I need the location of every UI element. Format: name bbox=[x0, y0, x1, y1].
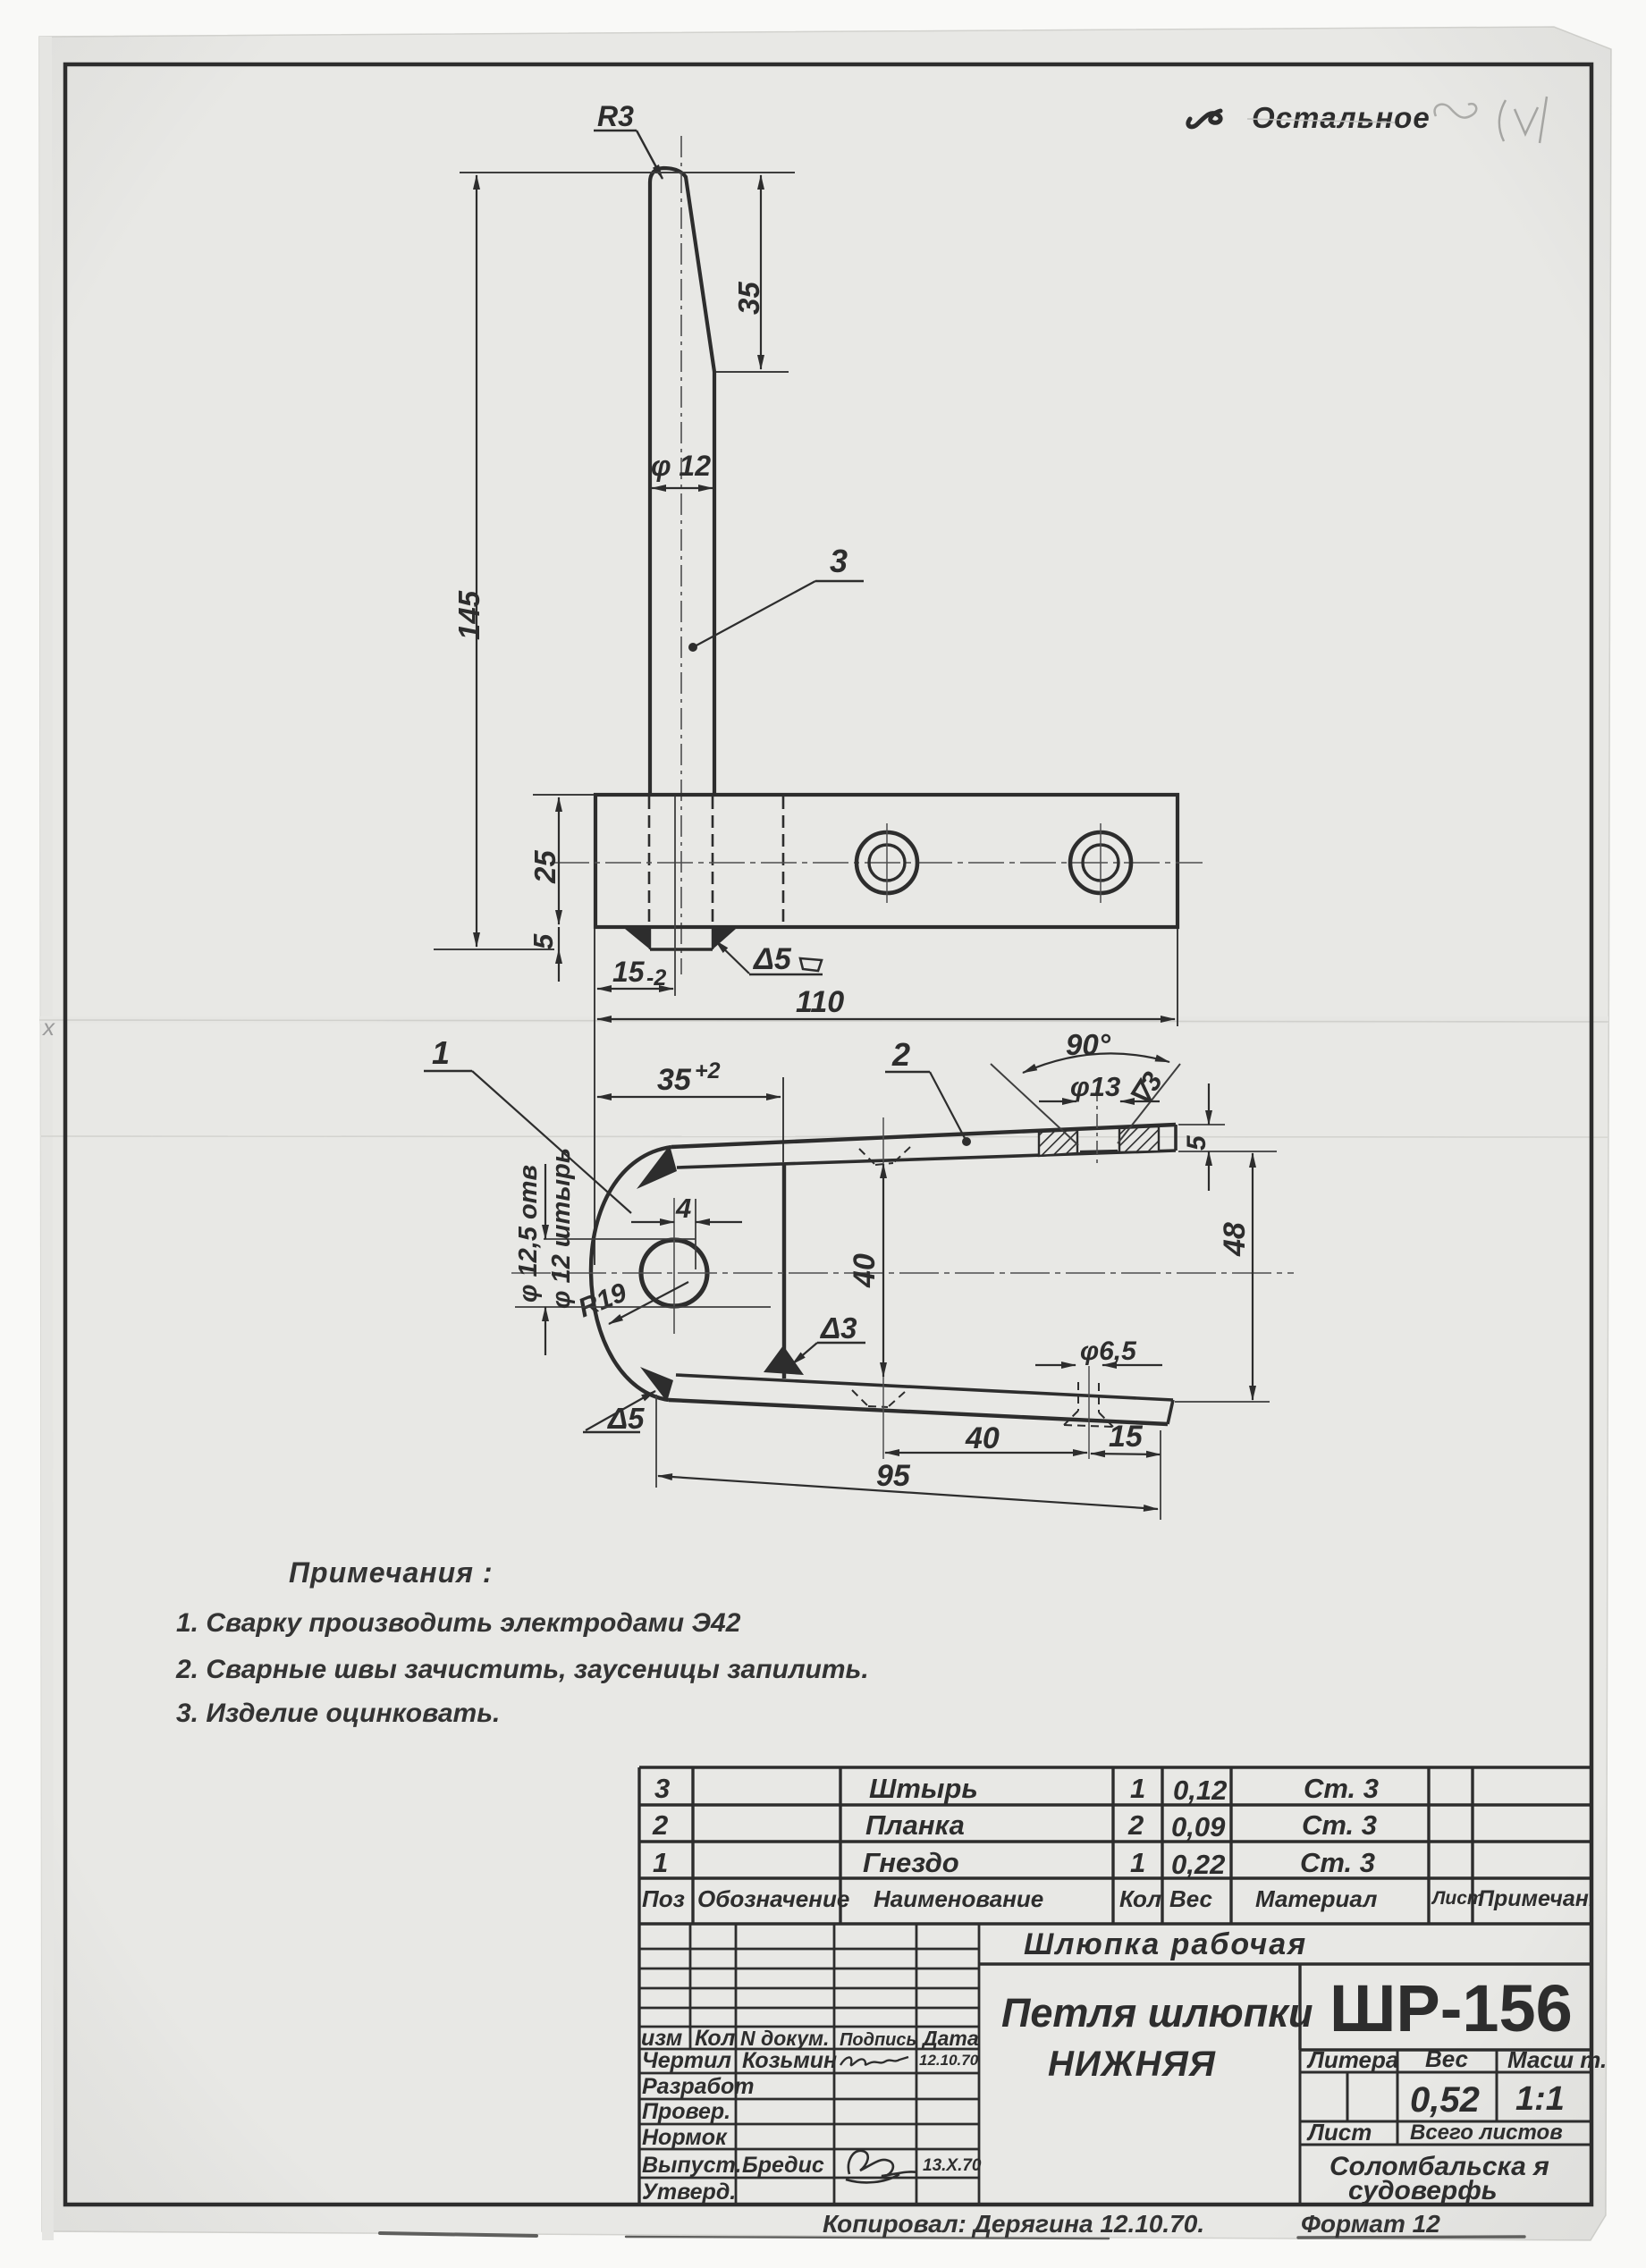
svg-text:Кол: Кол bbox=[695, 2026, 736, 2051]
svg-text:3: 3 bbox=[830, 543, 848, 579]
svg-text:Обозначение: Обозначение bbox=[697, 1885, 849, 1912]
svg-text:φ6,5: φ6,5 bbox=[1080, 1336, 1137, 1366]
svg-text:Дата: Дата bbox=[921, 2027, 979, 2050]
svg-text:2: 2 bbox=[652, 1809, 668, 1841]
svg-text:1:1: 1:1 bbox=[1515, 2080, 1565, 2118]
svg-text:13.X.70: 13.X.70 bbox=[923, 2156, 982, 2175]
svg-text:3. Изделие оцинковать.: 3. Изделие оцинковать. bbox=[176, 1699, 500, 1728]
svg-text:145: 145 bbox=[452, 590, 485, 640]
svg-text:Примечания :: Примечания : bbox=[289, 1556, 494, 1589]
svg-text:Вес: Вес bbox=[1169, 1885, 1213, 1912]
svg-text:0,52: 0,52 bbox=[1410, 2080, 1480, 2120]
svg-text:Бредис: Бредис bbox=[742, 2153, 824, 2178]
svg-text:Чертил: Чертил bbox=[642, 2048, 731, 2073]
svg-text:110: 110 bbox=[796, 985, 844, 1019]
svg-text:0,12: 0,12 bbox=[1173, 1775, 1227, 1806]
svg-text:Кол: Кол bbox=[1119, 1885, 1161, 1912]
svg-text:φ 12 штырь: φ 12 штырь bbox=[547, 1148, 576, 1309]
svg-text:φ13: φ13 bbox=[1070, 1071, 1120, 1102]
svg-text:4: 4 bbox=[675, 1193, 691, 1224]
svg-text:Δ5: Δ5 bbox=[606, 1402, 645, 1435]
svg-text:Козьмин: Козьмин bbox=[742, 2048, 837, 2073]
svg-text:95: 95 bbox=[876, 1459, 911, 1493]
svg-text:35: 35 bbox=[657, 1063, 692, 1097]
svg-text:N докум.: N докум. bbox=[740, 2027, 829, 2050]
svg-text:Штырь: Штырь bbox=[869, 1773, 978, 1804]
svg-text:φ 12,5 отв: φ 12,5 отв bbox=[514, 1165, 543, 1303]
svg-text:Выпуст.: Выпуст. bbox=[642, 2153, 741, 2178]
svg-text:5: 5 bbox=[528, 933, 559, 949]
svg-text:40: 40 bbox=[848, 1253, 882, 1288]
svg-text:12.10.70: 12.10.70 bbox=[919, 2052, 979, 2069]
svg-text:90°: 90° bbox=[1066, 1028, 1111, 1061]
svg-text:40: 40 bbox=[965, 1421, 1000, 1455]
svg-text:15: 15 bbox=[612, 956, 646, 988]
svg-text:Ст. 3: Ст. 3 bbox=[1304, 1773, 1379, 1804]
svg-text:2: 2 bbox=[891, 1036, 910, 1073]
svg-text:Петля шлюпки: Петля шлюпки bbox=[1001, 1990, 1313, 2036]
svg-text:Утверд.: Утверд. bbox=[642, 2179, 736, 2205]
svg-text:Литера: Литера bbox=[1306, 2046, 1398, 2073]
svg-text:Остальное: Остальное bbox=[1252, 101, 1431, 134]
svg-text:+2: +2 bbox=[695, 1058, 721, 1083]
svg-text:Ст. 3: Ст. 3 bbox=[1302, 1809, 1377, 1841]
svg-text:φ 12: φ 12 bbox=[651, 450, 711, 482]
svg-text:Δ3: Δ3 bbox=[819, 1311, 857, 1345]
svg-text:Разработ: Разработ bbox=[642, 2074, 755, 2099]
svg-text:1: 1 bbox=[1130, 1847, 1145, 1878]
svg-text:R3: R3 bbox=[597, 100, 634, 132]
svg-text:Подпись: Подпись bbox=[840, 2030, 916, 2050]
svg-text:48: 48 bbox=[1218, 1222, 1252, 1257]
svg-text:Поз: Поз bbox=[642, 1885, 685, 1912]
svg-text:Ст. 3: Ст. 3 bbox=[1300, 1847, 1375, 1878]
svg-text:НИЖНЯЯ: НИЖНЯЯ bbox=[1048, 2045, 1216, 2084]
svg-text:Вес: Вес bbox=[1425, 2045, 1469, 2072]
svg-text:25: 25 bbox=[528, 850, 561, 884]
svg-text:Примечан.: Примечан. bbox=[1478, 1886, 1595, 1911]
svg-text:1: 1 bbox=[1130, 1773, 1145, 1804]
svg-text:Материал: Материал bbox=[1255, 1885, 1377, 1912]
svg-text:15: 15 bbox=[1109, 1420, 1144, 1454]
svg-text:1: 1 bbox=[653, 1847, 668, 1878]
svg-text:-2: -2 bbox=[646, 965, 666, 991]
svg-text:изм: изм bbox=[641, 2026, 682, 2051]
svg-text:5: 5 bbox=[1182, 1134, 1211, 1151]
svg-text:Копировал: Дерягина 12.10.7: Копировал: Дерягина 12.10.70. bbox=[823, 2210, 1204, 2238]
svg-text:Гнездо: Гнездо bbox=[863, 1847, 959, 1878]
svg-text:1: 1 bbox=[432, 1034, 450, 1071]
svg-text:Лист: Лист bbox=[1431, 1888, 1484, 1909]
svg-text:3: 3 bbox=[654, 1773, 670, 1804]
svg-text:2. Сварные швы зачистить, за: 2. Сварные швы зачистить, заусеницы запи… bbox=[175, 1655, 869, 1684]
svg-text:ШР-156: ШР-156 bbox=[1329, 1971, 1573, 2045]
svg-text:Δ5: Δ5 bbox=[752, 942, 792, 976]
svg-text:x: x bbox=[41, 1014, 55, 1041]
svg-text:Формат 12: Формат 12 bbox=[1301, 2210, 1440, 2238]
svg-text:0,09: 0,09 bbox=[1171, 1811, 1226, 1842]
svg-text:Шлюпка рабочая: Шлюпка рабочая bbox=[1024, 1927, 1307, 1961]
svg-text:судоверфь: судоверфь bbox=[1348, 2176, 1498, 2205]
svg-text:Нормок: Нормок bbox=[642, 2125, 728, 2150]
svg-text:1. Сварку производить электр: 1. Сварку производить электродами Э42 bbox=[176, 1608, 741, 1638]
svg-text:2: 2 bbox=[1127, 1809, 1144, 1841]
svg-text:Всего листов: Всего листов bbox=[1410, 2120, 1563, 2145]
svg-text:Лист: Лист bbox=[1306, 2119, 1372, 2146]
svg-text:Провер.: Провер. bbox=[642, 2099, 730, 2124]
svg-text:Планка: Планка bbox=[865, 1809, 965, 1841]
svg-text:Наименование: Наименование bbox=[874, 1885, 1043, 1912]
svg-text:35: 35 bbox=[732, 282, 765, 315]
svg-text:Масш т.: Масш т. bbox=[1507, 2046, 1607, 2073]
svg-text:0,22: 0,22 bbox=[1171, 1849, 1225, 1880]
